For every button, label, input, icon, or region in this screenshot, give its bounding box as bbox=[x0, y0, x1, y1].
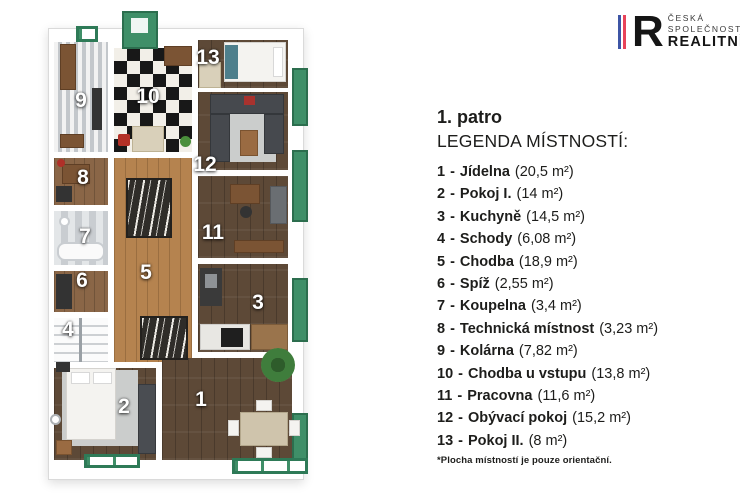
coffee-table bbox=[240, 130, 258, 156]
legend-item-11: 11-Pracovna(11,6 m²) bbox=[437, 385, 727, 407]
room-number: 13 bbox=[437, 433, 453, 449]
separator: - bbox=[458, 366, 463, 382]
room-number: 8 bbox=[437, 321, 445, 337]
room-number: 6 bbox=[437, 276, 445, 292]
sofa-right bbox=[264, 114, 284, 154]
shelf-kolarna bbox=[60, 44, 76, 90]
legend-heading: LEGENDA MÍSTNOSTÍ: bbox=[437, 131, 727, 152]
floor-lamp bbox=[50, 414, 61, 425]
zebra-rug-2 bbox=[140, 316, 188, 360]
room-name: Chodba u vstupu bbox=[468, 366, 586, 382]
chair-top bbox=[256, 400, 272, 411]
stool bbox=[56, 440, 72, 455]
desk bbox=[230, 184, 260, 204]
room-name: Technická místnost bbox=[460, 321, 594, 337]
separator: - bbox=[450, 321, 455, 337]
chair-right bbox=[289, 420, 300, 436]
separator: - bbox=[450, 186, 455, 202]
plant-small bbox=[180, 136, 191, 147]
plan-number-8: 8 bbox=[77, 166, 89, 190]
window-top-left bbox=[76, 26, 98, 42]
entry-cabinet bbox=[164, 46, 192, 66]
logo-line-1: ČESKÁ bbox=[668, 13, 740, 24]
room-name: Spíž bbox=[460, 276, 490, 292]
room-number: 5 bbox=[437, 254, 445, 270]
bed-pillow bbox=[273, 47, 283, 77]
legend-panel: 1. patro LEGENDA MÍSTNOSTÍ: 1-Jídelna(20… bbox=[437, 107, 727, 466]
plan-number-1: 1 bbox=[195, 388, 207, 412]
room-number: 4 bbox=[437, 231, 445, 247]
room-area: (3,4 m²) bbox=[531, 298, 582, 314]
room-area: (14,5 m²) bbox=[526, 209, 585, 225]
plan-number-4: 4 bbox=[62, 318, 74, 342]
legend-item-10: 10-Chodba u vstupu(13,8 m²) bbox=[437, 363, 727, 385]
room-area: (3,23 m²) bbox=[599, 321, 658, 337]
room-area: (11,6 m²) bbox=[537, 388, 595, 404]
window-right-1 bbox=[292, 68, 308, 126]
desk-chair bbox=[240, 206, 252, 218]
room-number: 12 bbox=[437, 410, 453, 426]
legend-item-9: 9-Kolárna(7,82 m²) bbox=[437, 340, 727, 362]
logo-line-3: REALITNÍ bbox=[668, 34, 740, 50]
plan-number-12: 12 bbox=[193, 153, 216, 177]
room-area: (2,55 m²) bbox=[495, 276, 554, 292]
separator: - bbox=[450, 164, 455, 180]
room-name: Pokoj I. bbox=[460, 186, 512, 202]
room-name: Obývací pokoj bbox=[468, 410, 567, 426]
bed-pokoj-1 bbox=[66, 368, 116, 440]
legend-item-13: 13-Pokoj II.(8 m²) bbox=[437, 430, 727, 452]
red-chair bbox=[118, 134, 130, 146]
legend-item-6: 6-Spíž(2,55 m²) bbox=[437, 273, 727, 295]
company-logo: R ČESKÁ SPOLEČNOST REALITNÍ bbox=[618, 13, 740, 50]
room-number: 3 bbox=[437, 209, 445, 225]
plan-number-13: 13 bbox=[196, 46, 219, 70]
bike-rack bbox=[92, 88, 102, 130]
stair-rail bbox=[79, 318, 82, 362]
logo-r-icon: R bbox=[632, 15, 662, 49]
room-number: 7 bbox=[437, 298, 445, 314]
room-area: (7,82 m²) bbox=[519, 343, 578, 359]
room-number: 9 bbox=[437, 343, 445, 359]
room-name: Jídelna bbox=[460, 164, 510, 180]
floor-plan: 1 2 3 4 5 6 7 8 9 10 11 12 13 bbox=[48, 28, 338, 488]
legend-item-12: 12-Obývací pokoj(15,2 m²) bbox=[437, 407, 727, 429]
separator: - bbox=[450, 343, 455, 359]
separator: - bbox=[450, 231, 455, 247]
room-number: 11 bbox=[437, 388, 452, 404]
room-area: (6,08 m²) bbox=[517, 231, 576, 247]
bed-blanket bbox=[225, 45, 238, 79]
separator: - bbox=[450, 209, 455, 225]
cooktop bbox=[221, 328, 243, 347]
plan-number-3: 3 bbox=[252, 291, 264, 315]
separator: - bbox=[457, 388, 462, 404]
separator: - bbox=[450, 298, 455, 314]
separator: - bbox=[450, 276, 455, 292]
room-name: Koupelna bbox=[460, 298, 526, 314]
room-area: (8 m²) bbox=[529, 433, 568, 449]
wardrobe-dark bbox=[138, 384, 156, 454]
logo-stripes-icon bbox=[618, 15, 626, 49]
room-name: Kuchyně bbox=[460, 209, 521, 225]
plan-number-7: 7 bbox=[79, 225, 91, 249]
kitchen-counter-wood bbox=[251, 324, 288, 350]
armchair bbox=[270, 186, 287, 224]
sink bbox=[59, 216, 70, 227]
separator: - bbox=[458, 433, 463, 449]
room-name: Pracovna bbox=[467, 388, 532, 404]
room-area: (18,9 m²) bbox=[519, 254, 578, 270]
shoe-bench bbox=[132, 126, 164, 152]
room-name: Kolárna bbox=[460, 343, 514, 359]
plan-number-10: 10 bbox=[136, 85, 159, 109]
sink-basin bbox=[205, 274, 217, 288]
separator: - bbox=[450, 254, 455, 270]
room-name: Pokoj II. bbox=[468, 433, 524, 449]
kitchen-sink-counter bbox=[200, 268, 222, 306]
chair-bottom bbox=[256, 447, 272, 458]
door-right-kitchen bbox=[292, 278, 308, 342]
room-number: 1 bbox=[437, 164, 445, 180]
legend-item-8: 8-Technická místnost(3,23 m²) bbox=[437, 318, 727, 340]
legend-footnote: *Plocha místností je pouze orientační. bbox=[437, 455, 727, 466]
pillow-right bbox=[93, 372, 112, 384]
red-pillow bbox=[244, 96, 255, 105]
room-area: (13,8 m²) bbox=[591, 366, 650, 382]
nightstand bbox=[56, 362, 70, 372]
legend-item-4: 4-Schody(6,08 m²) bbox=[437, 228, 727, 250]
legend-item-2: 2-Pokoj I.(14 m²) bbox=[437, 183, 727, 205]
zebra-rug-1 bbox=[126, 178, 172, 238]
window-bottom-right bbox=[232, 458, 308, 474]
logo-line-2: SPOLEČNOST bbox=[668, 24, 740, 35]
plan-number-5: 5 bbox=[140, 261, 152, 285]
pantry-shelf bbox=[56, 274, 72, 309]
window-bottom-left bbox=[84, 454, 140, 468]
sideboard bbox=[234, 240, 284, 253]
plan-number-11: 11 bbox=[202, 221, 224, 245]
window-right-2 bbox=[292, 150, 308, 222]
room-name: Schody bbox=[460, 231, 512, 247]
legend-item-7: 7-Koupelna(3,4 m²) bbox=[437, 295, 727, 317]
crate bbox=[60, 134, 84, 148]
legend-item-1: 1-Jídelna(20,5 m²) bbox=[437, 161, 727, 183]
chair-left bbox=[228, 420, 239, 436]
logo-text: ČESKÁ SPOLEČNOST REALITNÍ bbox=[668, 13, 740, 50]
room-area: (20,5 m²) bbox=[515, 164, 574, 180]
valve bbox=[57, 159, 65, 167]
plan-number-2: 2 bbox=[118, 395, 130, 419]
plant-large bbox=[261, 348, 295, 382]
plan-number-9: 9 bbox=[75, 89, 87, 113]
entry-door-green bbox=[122, 11, 158, 49]
room-area: (14 m²) bbox=[517, 186, 564, 202]
kitchen-counter bbox=[200, 324, 250, 350]
dining-table bbox=[240, 412, 288, 446]
separator: - bbox=[458, 410, 463, 426]
boiler bbox=[56, 186, 72, 202]
legend-item-3: 3-Kuchyně(14,5 m²) bbox=[437, 206, 727, 228]
floor-title: 1. patro bbox=[437, 107, 727, 128]
pillow-left bbox=[71, 372, 90, 384]
room-name: Chodba bbox=[460, 254, 514, 270]
door-window-pane bbox=[131, 18, 148, 33]
room-area: (15,2 m²) bbox=[572, 410, 631, 426]
room-number: 2 bbox=[437, 186, 445, 202]
legend-item-5: 5-Chodba(18,9 m²) bbox=[437, 251, 727, 273]
bed-pokoj-2 bbox=[224, 42, 286, 82]
room-number: 10 bbox=[437, 366, 453, 382]
plan-number-6: 6 bbox=[76, 269, 88, 293]
